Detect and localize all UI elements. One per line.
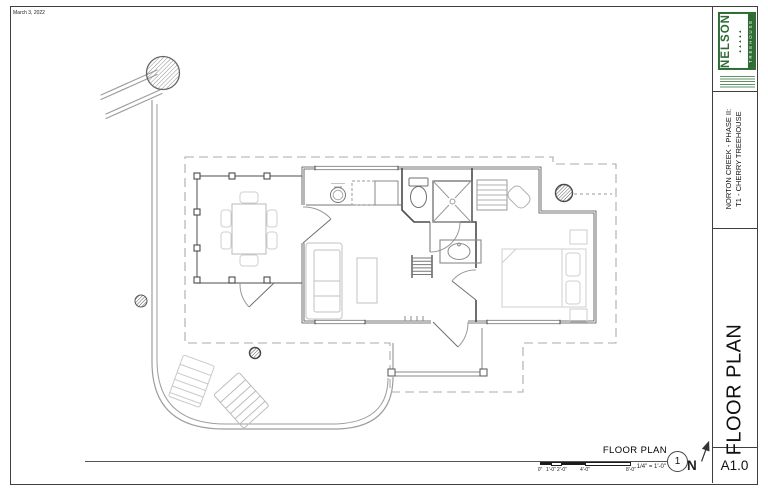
logo-name-secondary: TREEHOUSE: [748, 14, 755, 68]
project-title-cell: NORTON CREEK - PHASE II: T1 - CHERRY TRE…: [712, 91, 757, 228]
detail-number: 1: [675, 456, 681, 467]
tree-row-icon: ▲▲▲▲▲: [738, 29, 742, 54]
scale-tick-label: 4'-0": [580, 467, 590, 473]
scale-tick-label: 8'-0": [626, 467, 636, 473]
sheet-number-cell: A1.0: [712, 447, 757, 484]
sheet-title-cell: FLOOR PLAN: [712, 332, 757, 446]
detail-number-bubble: 1: [667, 451, 688, 472]
project-title-line1: NORTON CREEK - PHASE II:: [724, 109, 734, 210]
scale-segment: [551, 462, 562, 466]
scale-segment: [585, 462, 631, 466]
sheet-title: FLOOR PLAN: [723, 323, 746, 455]
scale-tick-label: 0": [538, 467, 543, 473]
nelson-treehouse-logo: NELSON ▲▲▲▲▲ TREEHOUSE: [718, 12, 756, 70]
graphic-scale-bar: 0" 1'-0" 2'-0" 4'-0" 8'-0": [540, 462, 635, 474]
company-logo: NELSON ▲▲▲▲▲ TREEHOUSE: [716, 9, 758, 73]
scale-segment: [562, 462, 585, 465]
sheet-number: A1.0: [721, 458, 749, 473]
north-arrow-icon: [692, 438, 718, 464]
scale-tick-label: 1'-0": [546, 467, 556, 473]
scale-segment: [540, 462, 551, 465]
sheet-date: March 3, 2022: [13, 10, 45, 16]
logo-name-primary: NELSON: [721, 14, 733, 68]
scale-tick-label: 2'-0": [557, 467, 567, 473]
title-block-rule-2: [713, 228, 757, 229]
project-title-line2: T1 - CHERRY TREEHOUSE: [735, 109, 745, 210]
sheet-border: [10, 6, 758, 485]
drawing-title-label: FLOOR PLAN: [540, 445, 667, 456]
logo-fine-print: [720, 76, 755, 89]
